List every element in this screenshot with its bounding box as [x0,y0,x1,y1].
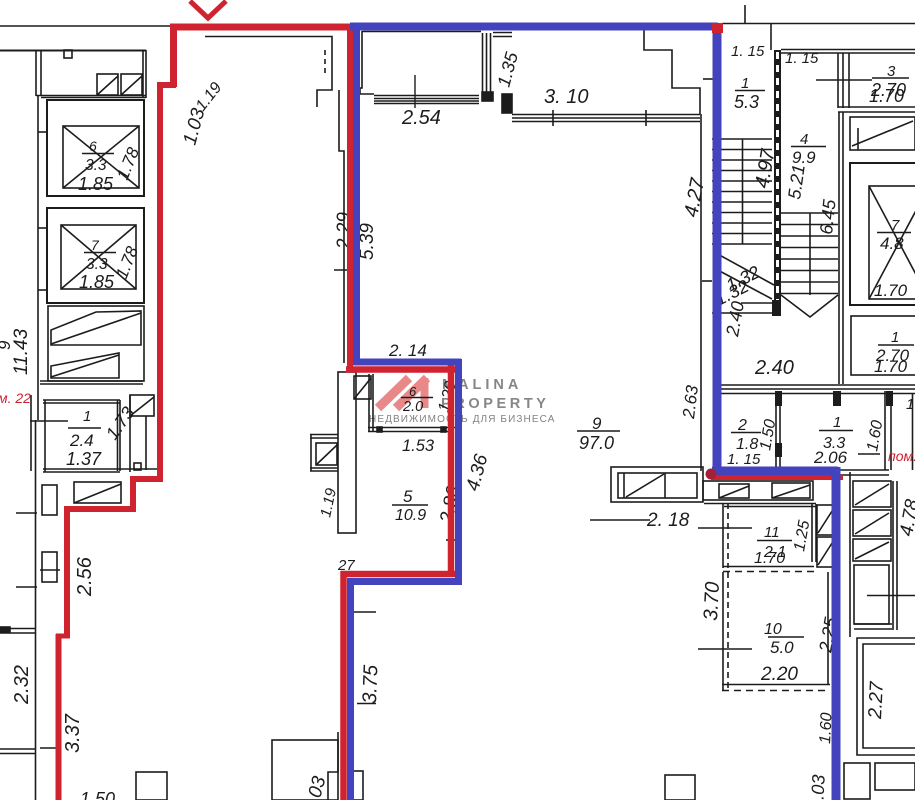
svg-text:1. 15: 1. 15 [785,50,819,67]
svg-text:7: 7 [91,237,100,253]
svg-text:2. 14: 2. 14 [388,341,427,360]
svg-text:1.70: 1.70 [874,281,908,300]
svg-text:1.03: 1.03 [807,774,829,800]
svg-text:1. 15: 1. 15 [731,43,765,60]
svg-text:3.75: 3.75 [359,664,382,705]
svg-text:1: 1 [741,75,749,92]
svg-text:6: 6 [89,138,97,154]
svg-text:1.: 1. [906,396,915,413]
svg-text:5.0: 5.0 [770,638,794,657]
svg-text:11.43: 11.43 [11,328,32,375]
svg-text:1: 1 [833,414,841,431]
svg-text:2.40: 2.40 [754,357,794,379]
svg-text:НЕДВИЖИМОСТЬ ДЛЯ БИЗНЕСА: НЕДВИЖИМОСТЬ ДЛЯ БИЗНЕСА [369,414,555,425]
svg-text:2.32: 2.32 [11,665,33,705]
svg-text:11: 11 [764,524,780,541]
svg-text:3.3: 3.3 [86,256,108,273]
svg-text:10.9: 10.9 [395,507,426,524]
svg-text:3.3: 3.3 [85,157,107,174]
svg-text:1.37: 1.37 [66,449,102,469]
svg-text:5: 5 [403,487,413,506]
svg-text:2.56: 2.56 [74,556,96,597]
svg-text:2.27: 2.27 [865,680,888,720]
svg-text:1: 1 [891,329,899,346]
svg-text:2.54: 2.54 [401,107,441,129]
svg-text:2.20: 2.20 [760,664,798,685]
svg-text:1.53: 1.53 [402,437,435,455]
svg-text:10: 10 [764,621,782,638]
svg-text:9: 9 [592,414,602,433]
svg-text:4: 4 [800,131,808,148]
svg-text:1.70: 1.70 [869,86,904,106]
svg-text:пом.: пом. [888,448,915,464]
svg-text:1: 1 [83,408,91,425]
svg-text:1.70: 1.70 [754,550,785,567]
svg-text:2.0: 2.0 [402,399,423,415]
svg-text:5.39: 5.39 [357,223,378,260]
svg-text:1.70: 1.70 [874,357,908,376]
svg-text:3.70: 3.70 [700,581,724,621]
svg-text:2: 2 [737,417,747,434]
svg-text:9: 9 [0,340,14,350]
svg-text:5.3: 5.3 [734,92,759,112]
svg-text:м. 22: м. 22 [0,390,31,406]
svg-text:3. 10: 3. 10 [544,86,588,108]
svg-text:2.4: 2.4 [69,431,94,450]
svg-text:2. 18: 2. 18 [646,510,690,531]
svg-text:1. 15: 1. 15 [727,451,761,468]
svg-text:1.85: 1.85 [78,174,114,194]
svg-text:7: 7 [891,217,900,234]
svg-text:1.50: 1.50 [80,789,115,800]
svg-text:1.85: 1.85 [79,272,115,292]
svg-text:3.37: 3.37 [62,713,84,753]
svg-text:6.45: 6.45 [816,198,840,236]
svg-text:2.06: 2.06 [813,448,848,467]
svg-text:4.8: 4.8 [880,234,904,253]
svg-text:97.0: 97.0 [579,433,614,453]
